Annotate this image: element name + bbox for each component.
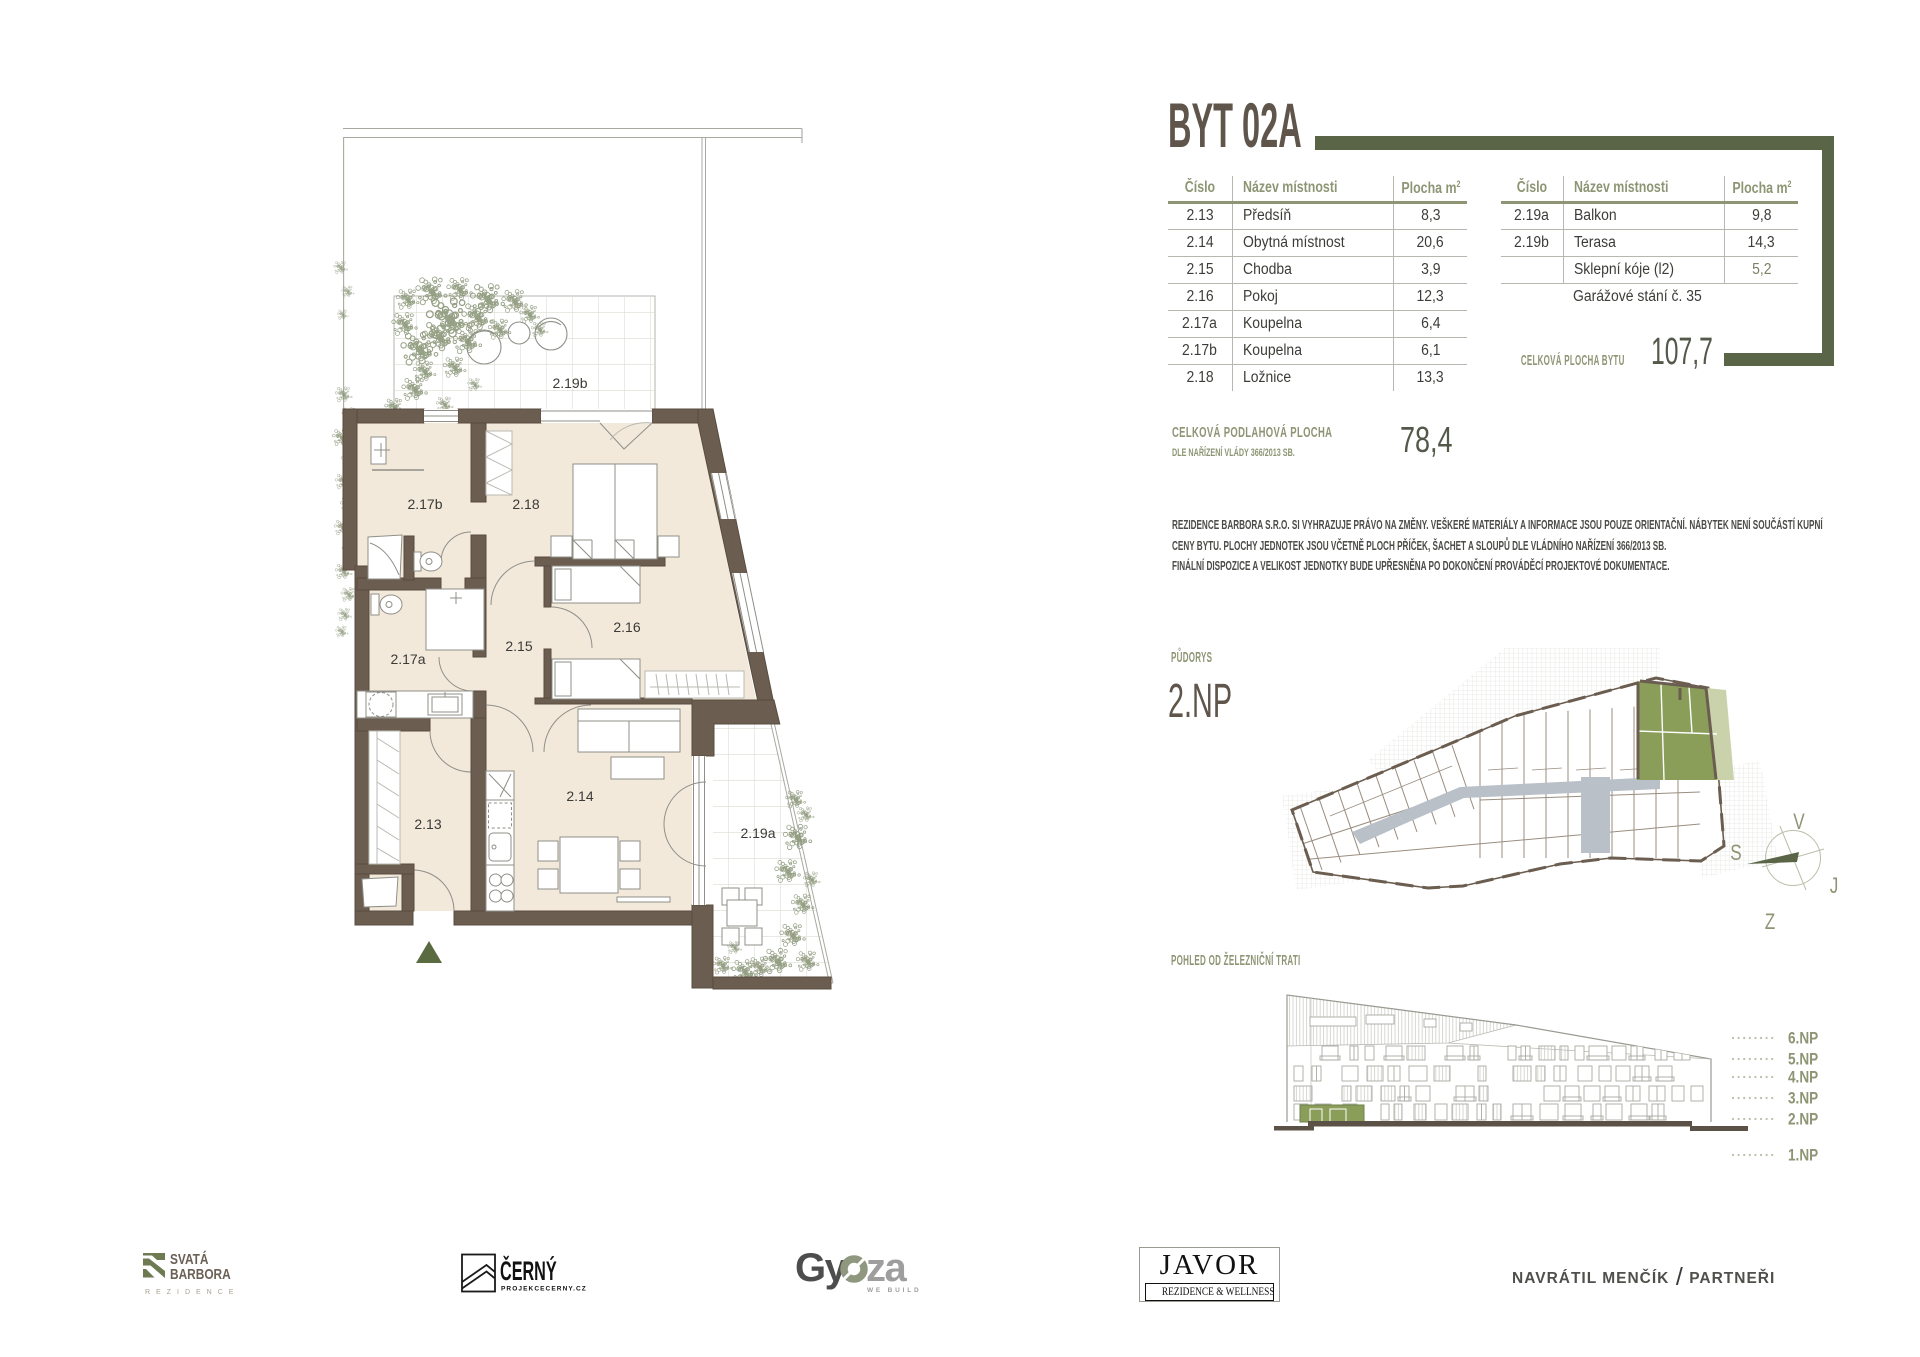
svg-text:Gy: Gy: [795, 1248, 848, 1290]
svg-text:2.NP: 2.NP: [1788, 1110, 1818, 1129]
svg-text:BARBORA: BARBORA: [170, 1266, 231, 1282]
svg-text:5.NP: 5.NP: [1788, 1050, 1818, 1069]
svg-text:ČERNÝ: ČERNÝ: [500, 1256, 557, 1286]
svg-text:4.NP: 4.NP: [1788, 1068, 1818, 1087]
svg-text:za: za: [866, 1248, 908, 1290]
svg-text:3.NP: 3.NP: [1788, 1089, 1818, 1108]
svg-text:PROJEKCECERNY.CZ: PROJEKCECERNY.CZ: [501, 1286, 587, 1293]
svg-text:1.NP: 1.NP: [1788, 1146, 1818, 1165]
svg-text:REZIDENCE: REZIDENCE: [145, 1289, 239, 1296]
svg-text:SVATÁ: SVATÁ: [170, 1251, 209, 1267]
svg-text:6.NP: 6.NP: [1788, 1029, 1818, 1048]
svg-text:WE BUILD: WE BUILD: [867, 1287, 920, 1294]
